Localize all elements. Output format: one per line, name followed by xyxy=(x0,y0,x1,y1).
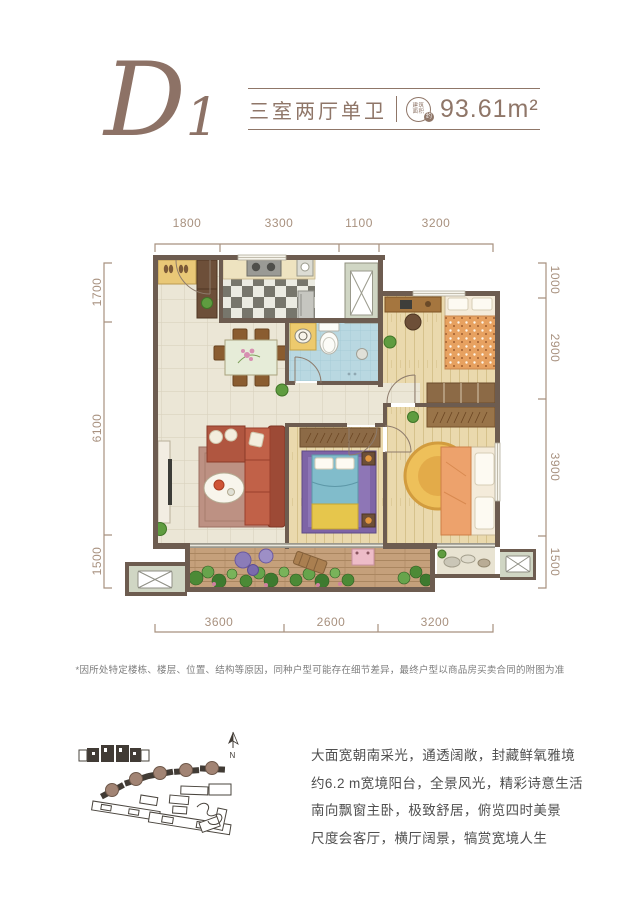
coffee-table xyxy=(204,473,244,503)
dim-right-1: 1000 xyxy=(548,266,562,295)
compass-icon: N xyxy=(228,732,238,760)
tv xyxy=(168,459,172,505)
desk-chair xyxy=(405,314,421,330)
dim-bottom-1: 3600 xyxy=(205,615,234,629)
dim-left-3: 1500 xyxy=(90,547,104,576)
dim-top-2: 3300 xyxy=(265,216,294,230)
master-wardrobe xyxy=(427,407,495,427)
area-value: 93.61m² xyxy=(440,95,539,124)
description-line: 南向飘窗主卧，极致舒居，俯览四时美景 xyxy=(311,797,571,825)
dim-top-1: 1800 xyxy=(173,216,202,230)
description: 大面宽朝南采光，通透阔敞，封藏鲜氧雅境 约6.2 m宽境阳台，全景风光，精彩诗意… xyxy=(311,742,571,852)
fridge xyxy=(298,291,314,319)
header-bar: 三室两厅单卫 建筑 面积 约 93.61m² xyxy=(248,88,540,130)
description-line: 约6.2 m宽境阳台，全景风光，精彩诗意生活 xyxy=(311,770,571,798)
plan-code: D1 xyxy=(104,46,254,156)
floorplan xyxy=(125,255,536,596)
dim-top-3: 1100 xyxy=(345,216,373,230)
site-plan: N xyxy=(79,732,238,835)
middle-wardrobe xyxy=(300,428,380,447)
desk xyxy=(385,297,441,312)
dim-right-2: 2900 xyxy=(548,334,562,363)
dim-left-2: 6100 xyxy=(90,414,104,443)
dim-bottom-3: 3200 xyxy=(421,615,450,629)
disclaimer: *因所处特定楼栋、楼层、位置、结构等原因，同种户型可能存在细节差异，最终户型以商… xyxy=(0,662,640,676)
description-line: 尺度会客厅，横厅阔景，犒赏宽境人生 xyxy=(311,825,571,853)
dim-right-3: 3900 xyxy=(548,453,562,482)
pouf xyxy=(235,552,251,568)
dim-right-4: 1500 xyxy=(548,548,562,577)
compass-label: N xyxy=(230,751,236,760)
corridor-floor xyxy=(285,383,385,425)
elevator-shaft xyxy=(345,263,378,323)
pouf xyxy=(259,549,273,563)
dim-left-1: 1700 xyxy=(90,278,104,307)
balcony-table xyxy=(352,549,374,565)
approx-badge: 约 xyxy=(424,112,434,122)
dim-bottom-2: 2600 xyxy=(317,615,346,629)
middle-bedroom xyxy=(300,428,380,533)
shower-drain xyxy=(357,349,368,360)
middle-bed xyxy=(312,455,358,529)
highlighted-building xyxy=(87,745,141,762)
study-bed xyxy=(445,295,496,369)
description-line: 大面宽朝南采光，通透阔敞，封藏鲜氧雅境 xyxy=(311,742,571,770)
area-icon: 建筑 面积 约 xyxy=(406,97,431,122)
dim-top-4: 3200 xyxy=(422,216,451,230)
master-bed xyxy=(441,447,497,535)
study-wardrobe xyxy=(427,383,495,403)
toilet xyxy=(319,323,339,354)
layout-label: 三室两厅单卫 xyxy=(249,95,387,124)
header-divider xyxy=(396,96,397,122)
